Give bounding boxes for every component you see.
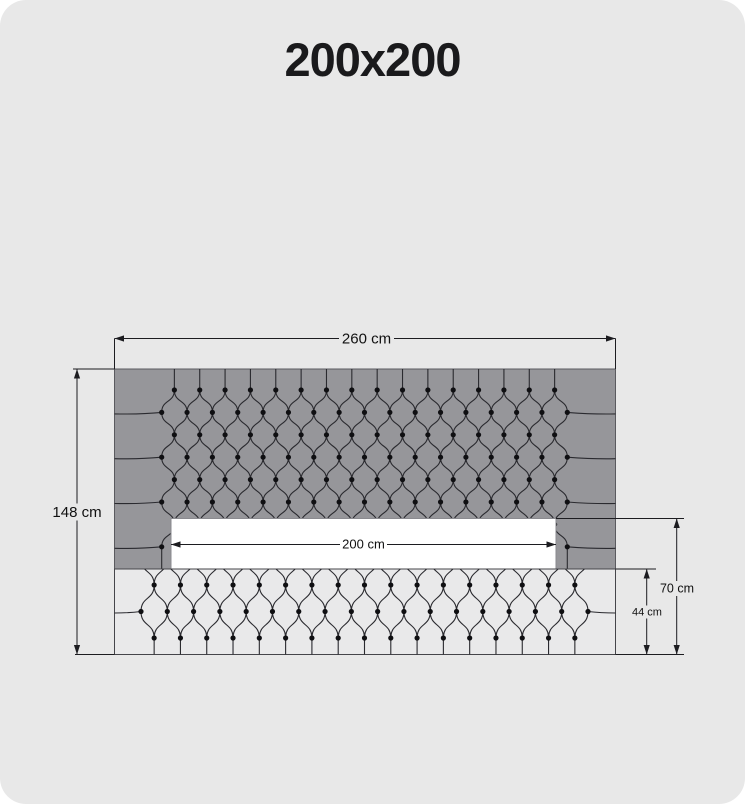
arrow-left-icon xyxy=(115,335,125,341)
arrow-up-icon xyxy=(674,519,680,529)
page-background: 200x200 xyxy=(0,0,745,804)
dim-label-mattress-height: 70 cm xyxy=(660,582,694,596)
dim-label-total-width: 260 cm xyxy=(342,331,391,348)
dim-label-total-height: 148 cm xyxy=(52,504,101,521)
arrow-right-icon xyxy=(606,335,616,341)
arrow-down-icon xyxy=(74,645,80,655)
arrow-up-icon xyxy=(74,369,80,379)
arrow-up-icon xyxy=(644,569,650,579)
dim-label-inner-width: 200 cm xyxy=(342,537,385,552)
arrow-down-icon xyxy=(674,645,680,655)
bed-diagram: 260 cm 148 cm 200 cm 70 cm 44 cm xyxy=(0,0,745,804)
dim-label-base-height: 44 cm xyxy=(632,607,662,619)
arrow-down-icon xyxy=(644,645,650,655)
